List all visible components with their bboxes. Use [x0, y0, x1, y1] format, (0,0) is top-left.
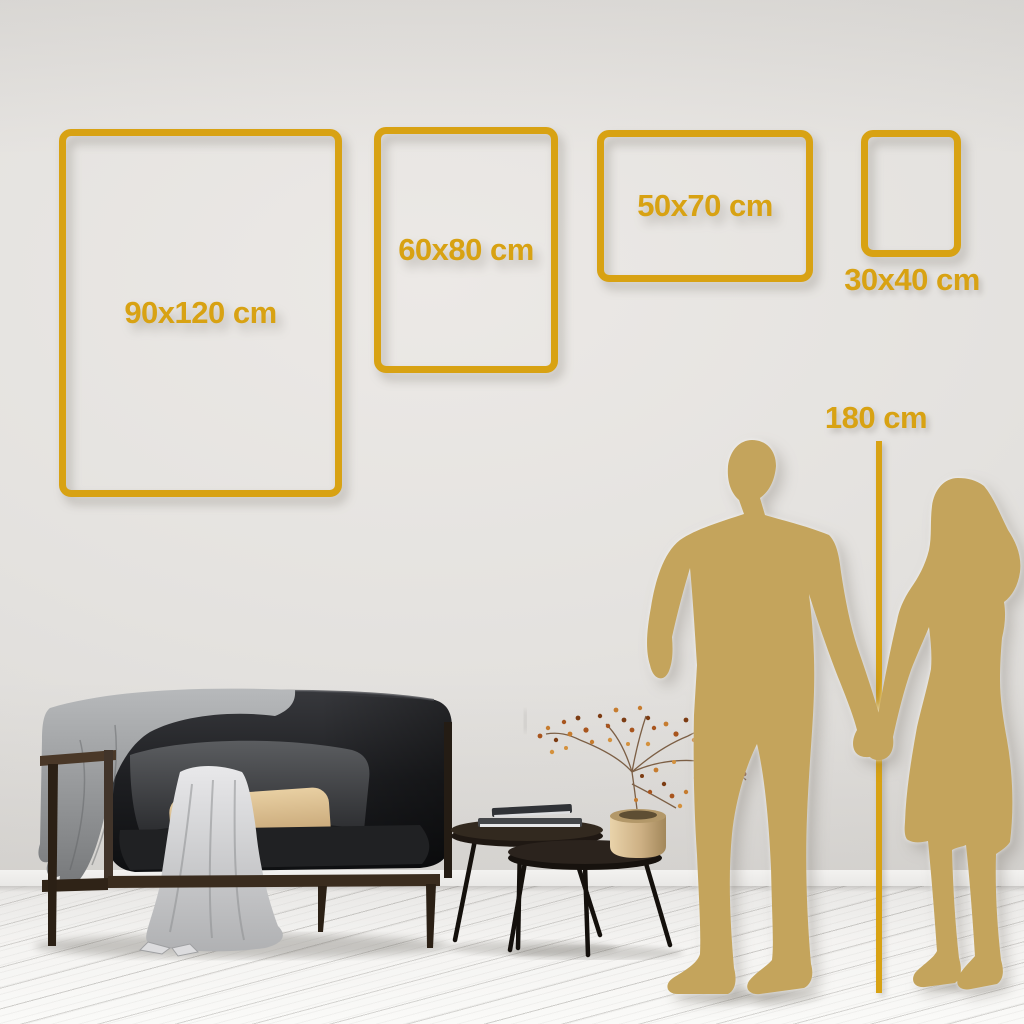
man-silhouette: [647, 440, 885, 994]
size-frame-60x80: 60x80 cm: [374, 127, 558, 373]
size-label-50x70: 50x70 cm: [637, 188, 773, 224]
size-label-30x40: 30x40 cm: [812, 262, 1012, 298]
wall-mark: [524, 710, 527, 732]
size-frame-50x70: 50x70 cm: [597, 130, 813, 282]
sofa-leg-right: [426, 884, 436, 948]
sofa-illustration: [20, 680, 460, 970]
sofa-leg-left: [48, 764, 58, 946]
poster-size-guide-scene: 90x120 cm 60x80 cm 50x70 cm 30x40 cm 180…: [0, 0, 1024, 1024]
sofa-leg-middle: [318, 886, 327, 932]
size-frame-90x120: 90x120 cm: [59, 129, 342, 497]
sofa-wood-rail: [108, 874, 440, 888]
size-frame-30x40: [861, 130, 961, 257]
woman-silhouette: [866, 478, 1020, 989]
couple-silhouette: [600, 430, 1024, 1014]
sofa-wood-post-left: [104, 750, 113, 882]
size-label-90x120: 90x120 cm: [124, 295, 276, 331]
books-stack: [478, 804, 582, 827]
size-label-60x80: 60x80 cm: [398, 232, 534, 268]
